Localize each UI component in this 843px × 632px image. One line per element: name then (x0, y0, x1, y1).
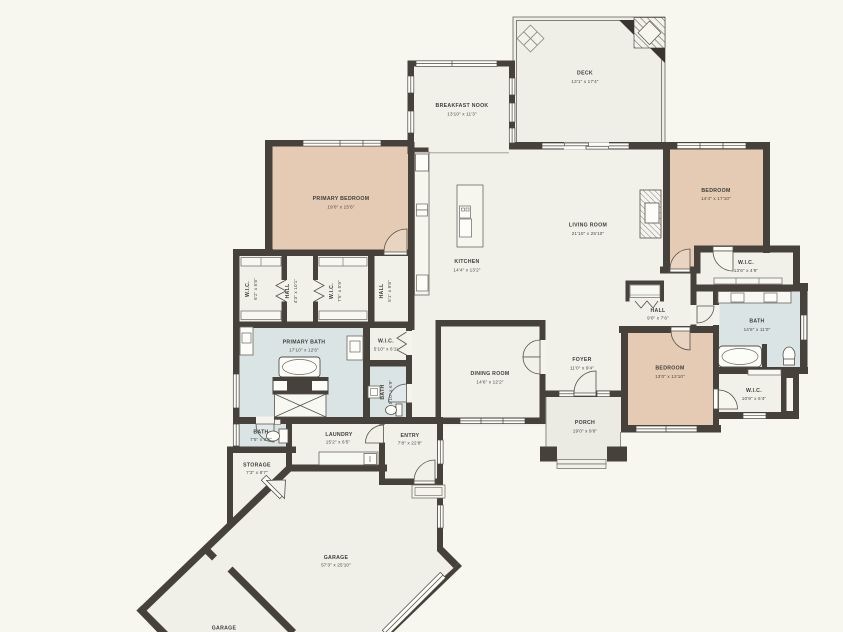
svg-text:57'3" x 25'10": 57'3" x 25'10" (321, 563, 351, 568)
svg-text:13'6" x 4'9": 13'6" x 4'9" (734, 268, 759, 273)
svg-text:BATH: BATH (253, 430, 268, 436)
svg-text:HALL: HALL (650, 308, 666, 314)
svg-text:DINING ROOM: DINING ROOM (470, 371, 509, 377)
svg-text:ENTRY: ENTRY (401, 433, 420, 439)
svg-text:13'0" x 13'10": 13'0" x 13'10" (655, 374, 685, 379)
svg-text:LIVING ROOM: LIVING ROOM (569, 223, 607, 229)
svg-text:4'3" x 10'1": 4'3" x 10'1" (293, 279, 298, 304)
svg-text:5'10" x 6'9": 5'10" x 6'9" (388, 380, 393, 405)
svg-text:W.I.C.: W.I.C. (378, 339, 394, 345)
svg-text:W.I.C.: W.I.C. (746, 388, 762, 394)
svg-text:PRIMARY BEDROOM: PRIMARY BEDROOM (313, 196, 370, 202)
svg-text:14'4" x 13'2": 14'4" x 13'2" (453, 268, 480, 273)
svg-text:W.I.C.: W.I.C. (245, 281, 251, 297)
svg-text:STORAGE: STORAGE (243, 463, 271, 469)
svg-text:15'2" x 6'5": 15'2" x 6'5" (326, 440, 351, 445)
svg-text:HALL: HALL (379, 283, 385, 299)
svg-text:BEDROOM: BEDROOM (655, 366, 684, 372)
svg-text:6'2" x 5'8": 6'2" x 5'8" (253, 278, 258, 300)
svg-text:11'0" x 9'4": 11'0" x 9'4" (570, 366, 594, 371)
svg-text:5'10" x 6'1": 5'10" x 6'1" (374, 347, 399, 352)
svg-text:7'3" x 8'7": 7'3" x 8'7" (246, 470, 268, 475)
svg-text:13'10" x 11'3": 13'10" x 11'3" (447, 112, 477, 117)
svg-text:14'8" x 11'0": 14'8" x 11'0" (744, 327, 771, 332)
svg-text:W.I.C.: W.I.C. (738, 260, 754, 266)
svg-text:7'5" x 3'6": 7'5" x 3'6" (250, 437, 272, 442)
svg-text:HALL: HALL (285, 283, 291, 299)
svg-text:W.I.C.: W.I.C. (329, 283, 335, 299)
svg-text:7'5" x 5'9": 7'5" x 5'9" (337, 280, 342, 302)
svg-text:BATH: BATH (380, 384, 386, 399)
svg-text:5'1" x 9'8": 5'1" x 9'8" (387, 280, 392, 302)
svg-text:17'10" x 12'6": 17'10" x 12'6" (289, 348, 319, 353)
svg-text:PORCH: PORCH (575, 420, 595, 426)
svg-text:GARAGE: GARAGE (324, 555, 349, 561)
svg-text:LAUNDRY: LAUNDRY (325, 432, 353, 438)
svg-text:14'6" x 12'2": 14'6" x 12'2" (476, 380, 503, 385)
svg-text:BREAKFAST NOOK: BREAKFAST NOOK (436, 103, 489, 109)
svg-text:FOYER: FOYER (572, 357, 591, 363)
svg-text:BATH: BATH (749, 319, 764, 325)
svg-text:KITCHEN: KITCHEN (454, 259, 479, 265)
svg-text:19'0" x 15'6": 19'0" x 15'6" (327, 205, 354, 210)
svg-text:21'10" x 25'10": 21'10" x 25'10" (572, 231, 605, 236)
svg-text:9'0" x 7'6": 9'0" x 7'6" (647, 316, 669, 321)
svg-text:BEDROOM: BEDROOM (701, 188, 730, 194)
svg-text:DECK: DECK (577, 71, 593, 77)
svg-text:19'0" x 9'6": 19'0" x 9'6" (573, 429, 598, 434)
svg-text:PRIMARY BATH: PRIMARY BATH (283, 340, 326, 346)
svg-text:13'1" x 17'4": 13'1" x 17'4" (571, 79, 598, 84)
svg-text:7'8" x 22'8": 7'8" x 22'8" (398, 441, 423, 446)
svg-text:GARAGE: GARAGE (212, 626, 237, 632)
svg-text:10'9" x 6'4": 10'9" x 6'4" (742, 396, 767, 401)
svg-text:14'4" x 17'10": 14'4" x 17'10" (701, 196, 731, 201)
